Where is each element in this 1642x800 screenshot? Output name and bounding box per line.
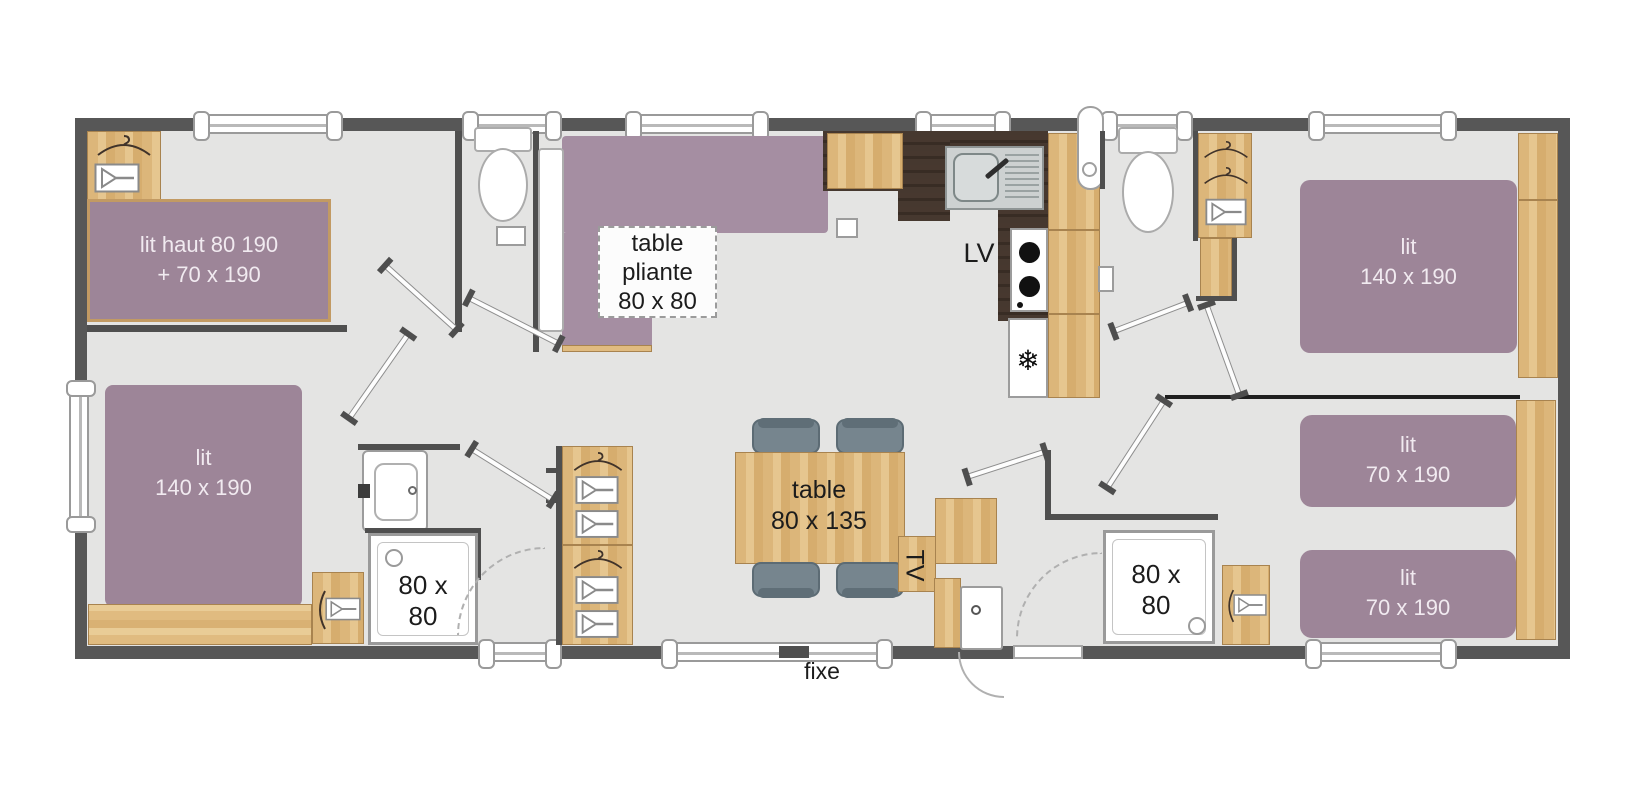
paper-holder	[1098, 266, 1114, 292]
sofa-chaise	[538, 148, 564, 332]
dining-table: table 80 x 135	[735, 452, 905, 564]
bed-right-double-label-line2: 140 x 190	[1300, 262, 1517, 292]
toilet2-tank	[1118, 127, 1178, 154]
dining-chair	[752, 562, 820, 597]
door-knob-icon	[971, 605, 981, 615]
bed-left-label-line2: 140 x 190	[105, 473, 302, 503]
kitchen-cabinet-top	[827, 133, 903, 189]
entry-side-cabinet	[935, 498, 997, 564]
bed-right-single-2: lit 70 x 190	[1300, 550, 1516, 638]
washbasin-left	[362, 450, 428, 532]
toilet2-bowl	[1122, 151, 1174, 233]
kitchen-counter-deep	[898, 131, 950, 221]
wc2-wall-left	[1100, 131, 1105, 189]
bed-right-single-1: lit 70 x 190	[1300, 415, 1516, 507]
wardrobe-bathroom2	[1222, 565, 1270, 645]
bunk-bed-label: lit haut 80 190 + 70 x 190	[90, 230, 328, 290]
burner-icon	[1019, 276, 1040, 297]
bed-right-single-2-line2: 70 x 190	[1300, 593, 1516, 623]
window-top-3	[630, 114, 764, 134]
shelf-icon	[325, 593, 361, 625]
bathroom2-wall-top	[1045, 514, 1218, 520]
window-top-1	[198, 114, 338, 134]
toilet1-bowl	[478, 148, 528, 222]
shower-right: 80 x 80	[1103, 530, 1215, 644]
wardrobe-bedroom1	[87, 131, 161, 201]
headboard-column-bottom	[1516, 400, 1556, 640]
folding-table-label-box: table pliante 80 x 80	[598, 226, 717, 318]
bed-right-single-1-line1: lit	[1300, 430, 1516, 460]
bed-left-double: lit 140 x 190	[105, 385, 302, 607]
hall-wardrobe-column	[562, 446, 633, 645]
floor-plan: fixe lit haut 80 190 + 70 x 190 lit 140 …	[0, 0, 1642, 800]
folding-table-label-line3: 80 x 80	[600, 287, 715, 316]
folding-table-label: table pliante 80 x 80	[600, 229, 715, 316]
wardrobe-bedroom2	[312, 572, 364, 644]
folding-table-label-line2: pliante	[600, 258, 715, 287]
headboard-column-top	[1518, 133, 1558, 378]
cabinet-divider	[1049, 313, 1099, 315]
hanger-icon	[571, 550, 625, 570]
bed-right-double-label: lit 140 x 190	[1300, 232, 1517, 292]
window-bottom-2	[1310, 642, 1452, 662]
dining-chair	[752, 419, 820, 454]
bay-window-mullion	[779, 646, 809, 658]
entry-shoe-cabinet	[934, 578, 961, 648]
shower-right-label-line1: 80 x	[1106, 559, 1206, 590]
partition-bedroom1-bottom	[87, 325, 347, 332]
tv-label: TV	[900, 545, 929, 587]
hall-cabinet-column	[1200, 238, 1232, 298]
faucet-icon	[408, 486, 417, 495]
dining-table-label-line2: 80 x 135	[736, 506, 902, 537]
washbasin-left-tap-handle	[358, 484, 370, 498]
dining-table-label-line1: table	[736, 475, 902, 506]
bunk-bed-label-line2: + 70 x 190	[90, 260, 328, 290]
partition-bedroom1-right	[455, 131, 462, 332]
hall-wall-corner-v	[1232, 238, 1237, 301]
window-top-4	[1313, 114, 1452, 134]
bunk-bed-label-line1: lit haut 80 190	[90, 230, 328, 260]
wc1-shelf	[496, 226, 526, 246]
bed-right-single-2-line1: lit	[1300, 563, 1516, 593]
hanger-icon	[1203, 140, 1249, 160]
dishwasher-label: LV	[950, 238, 1008, 269]
door-hinge-mark	[546, 468, 558, 473]
shower-right-label: 80 x 80	[1106, 559, 1206, 621]
entry-threshold	[1013, 645, 1083, 659]
hob-knob	[1017, 302, 1023, 308]
shelf-icon	[575, 609, 619, 639]
bed-right-double-label-line1: lit	[1300, 232, 1517, 262]
entry-door-arc	[958, 652, 1004, 698]
fixed-window-label: fixe	[770, 658, 874, 685]
sofa-base-trim	[562, 345, 652, 352]
wall-right	[1558, 118, 1570, 659]
dining-chair	[836, 419, 904, 454]
hanger-icon	[571, 452, 625, 472]
folding-table-label-line1: table	[600, 229, 715, 258]
window-left	[69, 385, 89, 528]
bed-left-label-line1: lit	[105, 443, 302, 473]
cabinet-divider	[1519, 199, 1557, 201]
burner-icon	[1019, 242, 1040, 263]
wardrobe-divider	[563, 544, 632, 546]
shelf-icon	[575, 509, 619, 539]
bed-right-single-1-line2: 70 x 190	[1300, 460, 1516, 490]
shelf-icon	[1233, 590, 1267, 620]
window-bottom-1	[483, 642, 557, 662]
hanger-icon	[96, 135, 152, 157]
partition-right-rooms	[1165, 395, 1520, 399]
cabinet-divider	[1049, 229, 1099, 231]
sink-bowl	[953, 153, 999, 202]
wall-switch	[836, 218, 858, 238]
bed-right-double: lit 140 x 190	[1300, 180, 1517, 353]
shelf-icon	[575, 575, 619, 605]
sofa-top	[562, 136, 828, 233]
bunk-bed: lit haut 80 190 + 70 x 190	[87, 199, 331, 322]
bed-left-bench	[88, 604, 312, 645]
bed-left-label: lit 140 x 190	[105, 443, 302, 503]
dining-chair	[836, 562, 904, 597]
bed-right-single-1-label: lit 70 x 190	[1300, 430, 1516, 490]
entry-door	[960, 586, 1003, 650]
shelf-icon	[1205, 192, 1247, 232]
sink-drainer	[1005, 154, 1039, 202]
hall-wall-corner-h	[1196, 296, 1236, 301]
dining-table-label: table 80 x 135	[736, 475, 902, 537]
fridge: ❄	[1008, 318, 1048, 398]
shower-left-label-line1: 80 x	[371, 570, 475, 601]
snowflake-icon: ❄	[1010, 344, 1046, 377]
hob	[1010, 228, 1048, 312]
hanger-icon	[1203, 166, 1249, 186]
shelf-icon	[575, 475, 619, 505]
kitchen-sink	[945, 146, 1044, 210]
shower-right-label-line2: 80	[1106, 590, 1206, 621]
shower-left-drain	[385, 549, 403, 567]
water-heater-cap	[1082, 162, 1097, 177]
wardrobe-hall-right	[1198, 133, 1252, 238]
shelf-icon	[94, 160, 140, 196]
bed-right-single-2-label: lit 70 x 190	[1300, 563, 1516, 623]
